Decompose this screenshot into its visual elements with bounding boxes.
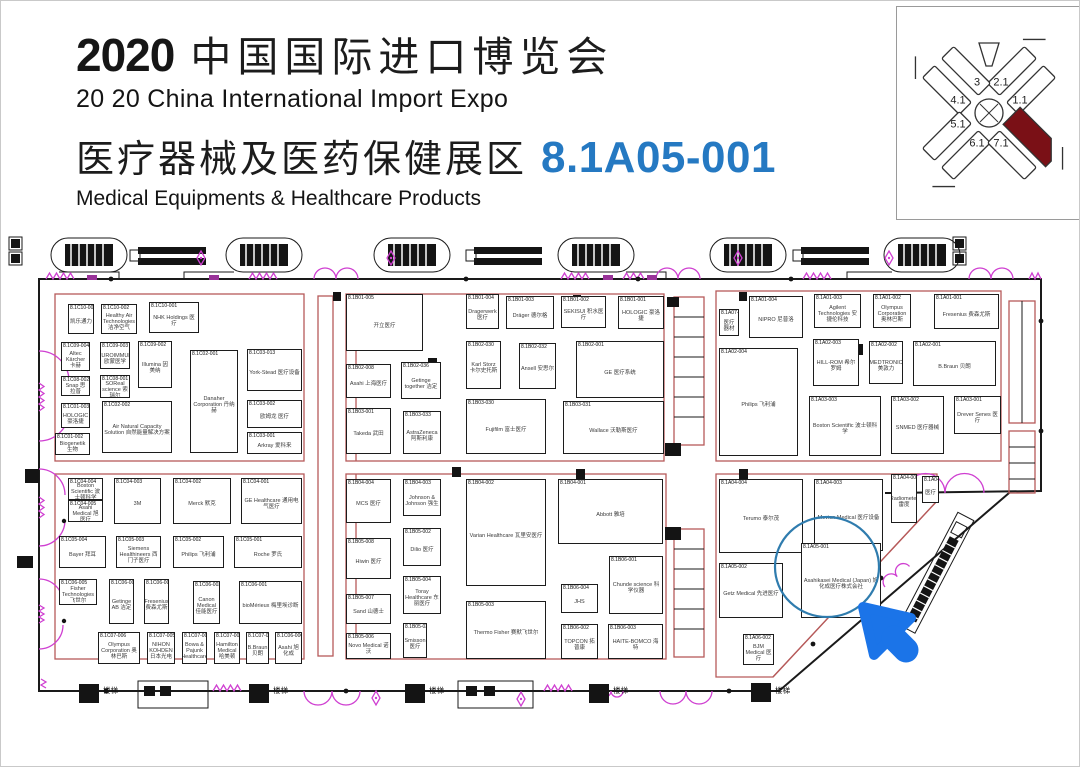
booth-id: 8.1C03-001 — [249, 433, 275, 439]
booth-id: 8.1B01-005 — [348, 295, 374, 301]
booth-name: 3M — [116, 486, 159, 522]
booth-id: 8.1B05-007 — [348, 595, 374, 601]
booth-8.1B01-001: 8.1B01-001HOLOGIC 豪洛捷 — [618, 296, 664, 329]
booth-8.1A02-001: 8.1A02-001B.Braun 贝朗 — [913, 341, 996, 386]
booth-8.1C03-013: 8.1C03-013York-Stead 医疗设备 — [247, 349, 302, 391]
booth-id: 8.1A01-001 — [936, 295, 962, 301]
booth-id: 8.1C09-003 — [102, 343, 128, 349]
booth-name: NIHON KOHDEN 日本光电 — [149, 640, 173, 662]
booth-name: Hamilton Medical 哈美顿 — [216, 640, 238, 662]
booth-8.1B04-002: 8.1B04-002Varian Healthcare 瓦里安医疗 — [466, 479, 546, 586]
booth-name: Asahi Medical 旭医疗 — [70, 508, 101, 520]
booth-id: 8.1B03-001 — [348, 409, 374, 415]
booth-id: 8.1C07-005 — [149, 633, 175, 639]
booth-id: 8.1C07-001 — [248, 633, 269, 639]
booth-8.1C10-002: 8.1C10-002Healthy Air Technologies 洁净空气 — [101, 304, 137, 334]
booth-name: Smisson 医疗 — [405, 631, 425, 656]
booth-id: 8.1C07-002 — [216, 633, 240, 639]
booth-8.1B01-004: 8.1B01-004Dragerwerk 医疗 — [466, 294, 499, 329]
booth-id: 8.1C03-002 — [249, 401, 275, 407]
booth-name: Dräger 德尔格 — [508, 304, 552, 327]
booth-8.1B04-003: 8.1B04-003Johnson & Johnson 强生 — [403, 479, 441, 516]
stairs-label: 楼梯 — [613, 685, 628, 696]
booth-name: 开立医疗 — [348, 302, 421, 349]
booth-8.1C02-002: 8.1C02-002Air Natural Capacity Solution … — [102, 401, 172, 453]
booth-name: Getz Medical 先进医疗 — [721, 571, 781, 616]
booth-name: Snap 思拉普 — [63, 384, 88, 394]
booth-name: HOLOGIC 豪洛捷 — [620, 304, 662, 327]
booth-name: NIPRO 尼普洛 — [751, 304, 801, 336]
booth-id: 8.1A04-002 — [893, 475, 917, 481]
booth-8.1B05-003: 8.1B05-003Thermo Fisher 赛默飞世尔 — [466, 601, 546, 659]
booth-8.1C08-001: 8.1C08-001SOReal science 索瑞尔 — [100, 375, 130, 398]
booth-id: 8.1C04-002 — [175, 479, 201, 485]
booth-8.1C03-002: 8.1C03-002欧姆龙 医疗 — [247, 400, 302, 428]
booth-id: 8.1C06-002 — [195, 582, 220, 588]
booth-id: 8.1B01-003 — [508, 297, 534, 303]
booth-name: Siemens Healthineers 西门子医疗 — [118, 544, 159, 566]
booth-8.1C09-004: 8.1C09-004Altec Kärcher 卡赫 — [61, 342, 90, 371]
booth-8.1A01-003: 8.1A01-003Agilent Technologies 安捷伦科技 — [814, 294, 861, 328]
booth-8.1B03-033: 8.1B03-033AstraZeneca 阿斯利康 — [403, 411, 441, 454]
booth-name: Boston Scientific 波士顿科学 — [70, 486, 101, 498]
booth-8.1A04-004: 8.1A04-004Terumo 泰尔茂 — [719, 479, 803, 553]
booth-8.1C02-001: 8.1C02-001Danaher Corporation 丹纳赫 — [190, 350, 238, 453]
booth-id: 8.1C04-001 — [243, 479, 269, 485]
booth-id: 8.1C05-001 — [236, 537, 262, 543]
booth-8.1C04-005: 8.1C04-005Asahi Medical 旭医疗 — [68, 500, 103, 522]
booth-id: 8.1C06-003 — [146, 580, 169, 586]
booth-8.1B02-032: 8.1B02-032Ansell 安思尔 — [519, 343, 556, 389]
booth-name: HOLOGIC 豪洛捷 — [63, 411, 88, 426]
booth-id: 8.1B05-003 — [468, 602, 494, 608]
booth-name: AstraZeneca 阿斯利康 — [405, 419, 439, 452]
booth-id: 8.1C01-002 — [57, 434, 83, 440]
booth-8.1B01-003: 8.1B01-003Dräger 德尔格 — [506, 296, 554, 329]
booth-id: 8.1A06-002 — [745, 635, 771, 641]
booth-8.1B05-002: 8.1B05-002Dilio 医疗 — [403, 528, 441, 566]
booth-8.1A01-001: 8.1A01-001Fresenius 费森尤斯 — [934, 294, 999, 329]
booth-id: 8.1A07-001 — [721, 310, 739, 316]
booth-8.1C01-002: 8.1C01-002Biogenetik 生物 — [55, 433, 90, 455]
booth-id: 8.1C10-003 — [70, 305, 94, 311]
booth-id: 8.1B01-004 — [468, 295, 494, 301]
booth-name: Fisher Technologies 飞世尔 — [61, 587, 95, 603]
booth-name: Abbott 雅培 — [560, 487, 661, 542]
stairs-label: 楼梯 — [775, 685, 790, 696]
booth-name: Terumo 泰尔茂 — [721, 487, 801, 551]
stairs-label: 楼梯 — [273, 685, 288, 696]
booth-name: SEKISUI 积水医疗 — [563, 304, 604, 326]
booth-8.1C04-003: 8.1C04-0033M — [114, 478, 161, 524]
booth-8.1B05-008: 8.1B05-008Hiwin 医疗 — [346, 538, 391, 579]
booth-8.1C05-002: 8.1C05-002Philips 飞利浦 — [173, 536, 224, 568]
booth-id: 8.1C02-001 — [192, 351, 218, 357]
booth-8.1B06-001: 8.1B06-001Chunde science 科学仪器 — [609, 556, 663, 614]
booth-name: Philips 飞利浦 — [721, 356, 796, 454]
booth-8.1B02-030: 8.1B02-030Karl Storz 卡尔史托斯 — [466, 341, 501, 389]
booth-name: Toray Healthcare 东丽医疗 — [405, 584, 439, 612]
booth-name: Canon Medical 佳能医疗 — [195, 589, 218, 622]
booth-id: 8.1A01-003 — [816, 295, 842, 301]
booth-id: 8.1C03-013 — [249, 350, 275, 356]
booth-8.1B06-002: 8.1B06-002TOPCON 拓普康 — [561, 624, 598, 659]
booth-id: 8.1A02-003 — [815, 340, 841, 346]
booth-8.1A05-001: 8.1A05-001Asahikasei Medical (Japan) 旭化成… — [801, 543, 881, 618]
booth-id: 8.1B02-008 — [348, 365, 374, 371]
booth-8.1C07-001: 8.1C07-001B.Braun 贝朗 — [246, 632, 269, 664]
booth-id: 8.1C04-003 — [116, 479, 142, 485]
booth-name: York-Stead 医疗设备 — [249, 357, 300, 389]
booth-name: Healthy Air Technologies 洁净空气 — [103, 312, 135, 332]
booth-name: NHK Holdings 医疗 — [151, 310, 197, 331]
booth-8.1B02-036: 8.1B02-036Getinge together 洁定 — [401, 362, 441, 399]
booth-id: 8.1A04-001 — [924, 477, 939, 483]
booth-name: Fresenius 费森尤斯 — [146, 587, 167, 622]
booth-id: 8.1C10-002 — [103, 305, 129, 311]
booth-id: 8.1A05-002 — [721, 564, 747, 570]
booth-name: Karl Storz 卡尔史托斯 — [468, 349, 499, 387]
booth-8.1C06-003: 8.1C06-003Fresenius 费森尤斯 — [144, 579, 169, 624]
booth-8.1B05-007: 8.1B05-007Sand 山德士 — [346, 594, 391, 624]
booth-id: 8.1B03-031 — [565, 402, 591, 408]
booth-8.1C10-003: 8.1C10-003凯乐通力 — [68, 304, 94, 334]
booth-8.1C09-002: 8.1C09-002Illumina 因美纳 — [138, 341, 172, 388]
booth-name: BJM Medical 医疗 — [745, 642, 772, 663]
booth-8.1C06-002: 8.1C06-002Canon Medical 佳能医疗 — [193, 581, 220, 624]
booth-id: 8.1B06-003 — [610, 625, 636, 631]
booth-name: Fresenius 费森尤斯 — [936, 302, 997, 327]
booth-name: Olympus Corporation 奥林巴斯 — [875, 302, 909, 326]
booth-8.1C07-002: 8.1C07-002Hamilton Medical 哈美顿 — [214, 632, 240, 664]
booth-id: 8.1B02-030 — [468, 342, 494, 348]
booth-id: 8.1B03-030 — [468, 400, 494, 406]
booth-name: MCS 医疗 — [348, 487, 389, 521]
booth-8.1A02-003: 8.1A02-003HILL-ROM 希尔罗姆 — [813, 339, 859, 386]
booth-8.1C07-005: 8.1C07-005NIHON KOHDEN 日本光电 — [147, 632, 175, 664]
booth-name: Johnson & Johnson 强生 — [405, 487, 439, 514]
booth-8.1C05-001: 8.1C05-001Roche 罗氏 — [234, 536, 302, 568]
booth-8.1A04-001: 8.1A04-001医疗 — [922, 476, 939, 503]
booth-id: 8.1B06-002 — [563, 625, 589, 631]
expo-map-page: 2020 中国国际进口博览会 20 20 China International… — [0, 0, 1080, 767]
booth-name: Sand 山德士 — [348, 602, 389, 622]
booth-8.1C06-001: 8.1C06-001bioMérieux 梅里埃诊断 — [239, 581, 302, 624]
booth-8.1B01-002: 8.1B01-002SEKISUI 积水医疗 — [561, 296, 606, 328]
booth-8.1B03-001: 8.1B03-001Takeda 武田 — [346, 408, 391, 454]
booth-8.1B06-004: 8.1B06-004JHS — [561, 584, 598, 613]
booth-name: MEDTRONIC 美敦力 — [871, 349, 901, 382]
booth-id: 8.1B06-001 — [611, 557, 637, 563]
booth-name: Hiwin 医疗 — [348, 546, 389, 577]
booth-8.1B03-031: 8.1B03-031Wallace 沃勒斯医疗 — [563, 401, 664, 454]
booth-name: Merck 默克 — [175, 486, 229, 522]
booth-id: 8.1B05-002 — [405, 529, 431, 535]
booth-name: Novo Medical 诺沃 — [348, 641, 389, 657]
booth-8.1B05-034: 8.1B05-034Smisson 医疗 — [403, 623, 427, 658]
booth-layer: 8.1C10-003凯乐通力8.1C10-002Healthy Air Tech… — [1, 1, 1079, 766]
booth-8.1A02-004: 8.1A02-004Philips 飞利浦 — [719, 348, 798, 456]
booth-id: 8.1C06-001 — [241, 582, 267, 588]
booth-id: 8.1B01-001 — [620, 297, 646, 303]
booth-id: 8.1A04-003 — [816, 480, 842, 486]
booth-id: 8.1A02-002 — [871, 342, 897, 348]
booth-8.1A03-001: 8.1A03-001Drever Senes 医疗 — [954, 396, 1001, 434]
booth-8.1B05-004: 8.1B05-004Toray Healthcare 东丽医疗 — [403, 576, 441, 614]
booth-id: 8.1B05-034 — [405, 624, 427, 630]
stairs-label: 楼梯 — [103, 685, 118, 696]
booth-id: 8.1B02-001 — [578, 342, 604, 348]
booth-name: Boston Scientific 波士顿科学 — [811, 404, 879, 454]
booth-name: SNMED 医疗器械 — [893, 404, 942, 452]
booth-name: Wallace 沃勒斯医疗 — [565, 409, 662, 452]
booth-name: SOReal science 索瑞尔 — [102, 383, 128, 396]
booth-id: 8.1C07-006 — [100, 633, 126, 639]
booth-name: Varian Healthcare 瓦里安医疗 — [468, 487, 544, 584]
booth-8.1C06-004: 8.1C06-004Getinge AB 洁定 — [109, 579, 134, 624]
booth-id: 8.1A01-002 — [875, 295, 901, 301]
booth-id: 8.1C10-001 — [151, 303, 177, 309]
booth-name: 医疗 — [924, 484, 937, 501]
booth-id: 8.1B04-002 — [468, 480, 494, 486]
booth-8.1C04-002: 8.1C04-002Merck 默克 — [173, 478, 231, 524]
booth-name: Olympus Corporation 奥林巴斯 — [100, 640, 138, 662]
booth-name: TOPCON 拓普康 — [563, 632, 596, 657]
booth-name: JHS — [563, 592, 596, 611]
booth-8.1C07-006: 8.1C07-006Olympus Corporation 奥林巴斯 — [98, 632, 140, 664]
booth-id: 8.1C09-002 — [140, 342, 166, 348]
booth-name: Asahikasei Medical (Japan) 旭化成医疗株式会社 — [803, 551, 879, 616]
booth-id: 8.1A03-002 — [893, 397, 919, 403]
booth-name: GE Healthcare 通用电气医疗 — [243, 486, 300, 522]
booth-8.1A04-002: 8.1A04-002Radiometer 雷度 — [891, 474, 917, 523]
booth-8.1A06-002: 8.1A06-002BJM Medical 医疗 — [743, 634, 774, 665]
booth-8.1C05-003: 8.1C05-003Siemens Healthineers 西门子医疗 — [116, 536, 161, 568]
booth-8.1B02-008: 8.1B02-008Asahi 上海医疗 — [346, 364, 391, 398]
booth-8.1B03-030: 8.1B03-030Fujifilm 富士医疗 — [466, 399, 546, 454]
booth-name: Takeda 武田 — [348, 416, 389, 452]
booth-id: 8.1A02-004 — [721, 349, 747, 355]
booth-8.1C10-001: 8.1C10-001NHK Holdings 医疗 — [149, 302, 199, 333]
booth-8.1C04-004: 8.1C04-004Boston Scientific 波士顿科学 — [68, 478, 103, 500]
booth-id: 8.1A03-001 — [956, 397, 982, 403]
booth-8.1C06-005: 8.1C06-005Fisher Technologies 飞世尔 — [59, 579, 97, 605]
booth-8.1A03-002: 8.1A03-002SNMED 医疗器械 — [891, 396, 944, 454]
booth-8.1B04-001: 8.1B04-001Abbott 雅培 — [558, 479, 663, 544]
booth-name: Illumina 因美纳 — [140, 349, 170, 386]
booth-name: Asahi 上海医疗 — [348, 372, 389, 396]
booth-id: 8.1A02-001 — [915, 342, 941, 348]
booth-id: 8.1C02-002 — [104, 402, 130, 408]
booth-name: Biogenetik 生物 — [57, 441, 88, 453]
booth-name: Fujifilm 富士医疗 — [468, 407, 544, 452]
booth-8.1A03-003: 8.1A03-003Boston Scientific 波士顿科学 — [809, 396, 881, 456]
booth-name: Drever Senes 医疗 — [956, 404, 999, 432]
booth-name: B.Braun 贝朗 — [915, 349, 994, 384]
booth-8.1A02-002: 8.1A02-002MEDTRONIC 美敦力 — [869, 341, 903, 384]
booth-8.1C04-001: 8.1C04-001GE Healthcare 通用电气医疗 — [241, 478, 302, 524]
booth-name: Bayer 拜耳 — [61, 544, 104, 566]
booth-name: 凯乐通力 — [70, 312, 92, 332]
booth-id: 8.1A04-004 — [721, 480, 747, 486]
booth-name: Thermo Fisher 赛默飞世尔 — [468, 609, 544, 657]
booth-id: 8.1C09-004 — [63, 343, 89, 349]
booth-8.1A04-003: 8.1A04-003Mevion Medical 医疗设备 — [814, 479, 883, 551]
booth-id: 8.1B04-004 — [348, 480, 374, 486]
booth-8.1A07-001: 8.1A07-001医疗器材 — [719, 309, 739, 336]
booth-name: Air Natural Capacity Solution 自然能量解决方案 — [104, 409, 170, 451]
booth-name: Mevion Medical 医疗设备 — [816, 487, 881, 549]
booth-8.1C06-006: 8.1C06-006Asahi 旭化成 — [275, 632, 302, 664]
booth-id: 8.1B04-001 — [560, 480, 586, 486]
booth-name: Dragerwerk 医疗 — [468, 302, 497, 327]
booth-name: HAITE-BOMCO 海特 — [610, 632, 661, 657]
booth-8.1C05-004: 8.1C05-004Bayer 拜耳 — [59, 536, 106, 568]
booth-8.1C08-002: 8.1C08-002Snap 思拉普 — [61, 376, 90, 396]
booth-8.1C07-003: 8.1C07-003Bowa & Pajunk Healthcare — [182, 632, 207, 664]
booth-8.1C03-001: 8.1C03-001Arkray 爱科来 — [247, 432, 302, 454]
booth-name: Danaher Corporation 丹纳赫 — [192, 358, 236, 451]
booth-name: Arkray 爱科来 — [249, 440, 300, 452]
booth-name: Getinge AB 洁定 — [111, 587, 132, 622]
booth-8.1B02-001: 8.1B02-001GE 医疗系统 — [576, 341, 664, 398]
booth-name: 医疗器材 — [721, 317, 737, 334]
booth-id: 8.1B06-004 — [563, 585, 589, 591]
booth-id: 8.1B05-006 — [348, 634, 374, 640]
booth-8.1C09-003: 8.1C09-003EUROIMMUN 欧蒙医学 — [100, 342, 130, 369]
booth-id: 8.1C06-004 — [111, 580, 134, 586]
booth-id: 8.1B02-036 — [403, 363, 429, 369]
booth-id: 8.1B05-004 — [405, 577, 431, 583]
booth-8.1A05-002: 8.1A05-002Getz Medical 先进医疗 — [719, 563, 783, 618]
booth-id: 8.1B05-008 — [348, 539, 374, 545]
booth-8.1B01-005: 8.1B01-005开立医疗 — [346, 294, 423, 351]
booth-8.1B05-006: 8.1B05-006Novo Medical 诺沃 — [346, 633, 391, 659]
booth-id: 8.1C01-003 — [63, 404, 89, 410]
booth-id: 8.1A03-003 — [811, 397, 837, 403]
booth-id: 8.1B03-033 — [405, 412, 431, 418]
booth-8.1C01-003: 8.1C01-003HOLOGIC 豪洛捷 — [61, 403, 90, 428]
booth-name: Roche 罗氏 — [236, 544, 300, 566]
booth-8.1A01-004: 8.1A01-004NIPRO 尼普洛 — [749, 296, 803, 338]
booth-name: Ansell 安思尔 — [521, 351, 554, 387]
booth-name: Bowa & Pajunk Healthcare — [184, 640, 205, 662]
booth-name: Philips 飞利浦 — [175, 544, 222, 566]
booth-name: Altec Kärcher 卡赫 — [63, 350, 88, 369]
booth-name: Agilent Technologies 安捷伦科技 — [816, 302, 859, 326]
booth-name: HILL-ROM 希尔罗姆 — [815, 347, 857, 384]
booth-name: EUROIMMUN 欧蒙医学 — [102, 350, 128, 367]
booth-8.1B06-003: 8.1B06-003HAITE-BOMCO 海特 — [608, 624, 663, 659]
booth-id: 8.1C07-003 — [184, 633, 207, 639]
booth-id: 8.1C05-004 — [61, 537, 87, 543]
booth-id: 8.1C05-002 — [175, 537, 201, 543]
stairs-label: 楼梯 — [429, 685, 444, 696]
booth-id: 8.1A01-004 — [751, 297, 777, 303]
booth-8.1B04-004: 8.1B04-004MCS 医疗 — [346, 479, 391, 523]
booth-id: 8.1B04-003 — [405, 480, 431, 486]
booth-name: Asahi 旭化成 — [277, 640, 300, 662]
booth-id: 8.1C06-006 — [277, 633, 302, 639]
booth-name: GE 医疗系统 — [578, 349, 662, 396]
booth-name: Radiometer 雷度 — [893, 482, 915, 521]
booth-id: 8.1A05-001 — [803, 544, 829, 550]
booth-id: 8.1B01-002 — [563, 297, 589, 303]
booth-8.1A01-002: 8.1A01-002Olympus Corporation 奥林巴斯 — [873, 294, 911, 328]
booth-name: Getinge together 洁定 — [403, 370, 439, 397]
booth-id: 8.1C05-003 — [118, 537, 144, 543]
booth-name: Chunde science 科学仪器 — [611, 564, 661, 612]
booth-name: 欧姆龙 医疗 — [249, 408, 300, 426]
booth-id: 8.1B02-032 — [521, 344, 547, 350]
booth-name: bioMérieux 梅里埃诊断 — [241, 589, 300, 622]
booth-name: Dilio 医疗 — [405, 536, 439, 564]
booth-name: B.Braun 贝朗 — [248, 640, 267, 662]
